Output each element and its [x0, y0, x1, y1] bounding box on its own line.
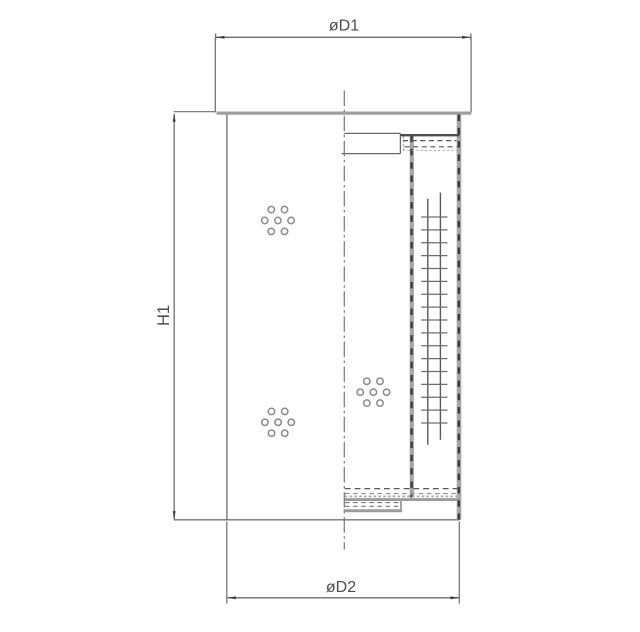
svg-text:øD2: øD2: [326, 579, 356, 596]
svg-text:øD1: øD1: [329, 18, 359, 35]
svg-text:H1: H1: [155, 305, 173, 326]
